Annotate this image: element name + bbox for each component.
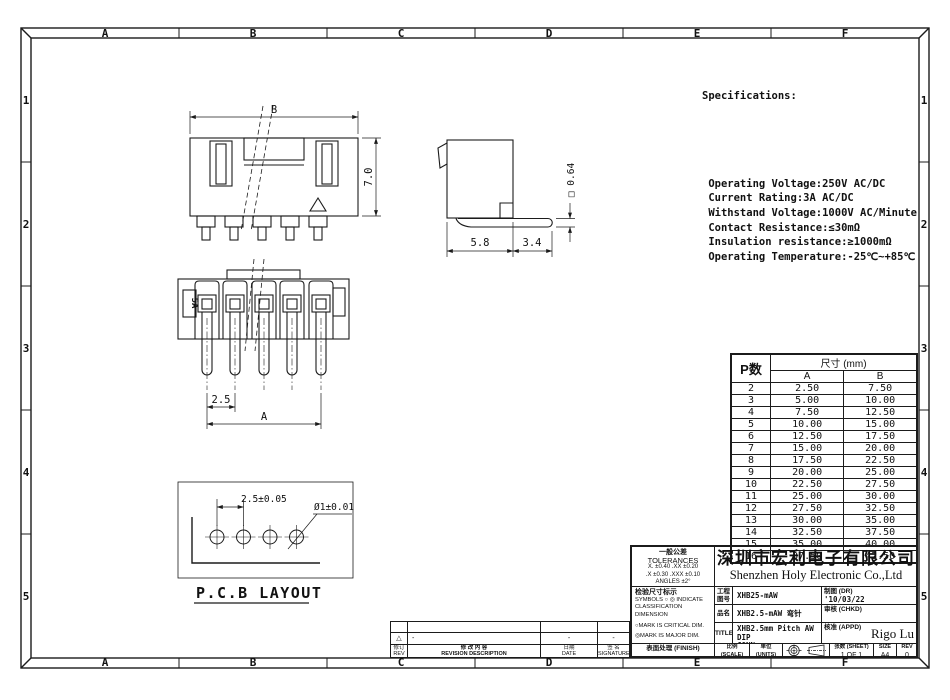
size-table-col-b: B (844, 371, 917, 383)
revision-desc-header: 修 改 内 容 REVISION DESCRIPTION (408, 645, 541, 657)
symbols-line: ○MARK IS CRITICAL DIM. (635, 623, 714, 631)
cell-dim-a: 27.50 (771, 503, 844, 515)
name-cell: XHB2.5-mAW 弯针 (733, 605, 822, 623)
dim-pcb-hole: Ø1±0.01 (314, 502, 354, 513)
current-marking: 5A (189, 298, 199, 309)
grid-row-label: 1 (921, 94, 928, 107)
front-view-dimensions (190, 111, 381, 216)
dim-side-pin-size: □ 0.64 (566, 163, 577, 198)
cell-pin-count: 8 (731, 455, 771, 467)
revision-desc-value: - (408, 633, 541, 645)
finish-cell: 表面处理 (FINISH) (632, 644, 715, 657)
drawn-cell: 制图 (DR) '10/03/22 (822, 587, 917, 605)
tolerances-line: .X ±0.30 .XXX ±0.10 (632, 572, 714, 580)
cell-dim-b: 32.50 (844, 503, 917, 515)
cell-pin-count: 7 (731, 443, 771, 455)
cell-pin-count: 13 (731, 515, 771, 527)
cell-pin-count: 3 (731, 395, 771, 407)
units-label: 单位 (UNITS) (750, 644, 782, 657)
specifications-block: Specifications: Operating Voltage:250V A… (702, 60, 917, 279)
cell-dim-b: 17.50 (844, 431, 917, 443)
cell-dim-a: 22.50 (771, 479, 844, 491)
table-row: 10 22.50 27.50 (731, 479, 917, 491)
grid-row-label: 5 (921, 590, 928, 603)
cell-dim-a: 10.00 (771, 419, 844, 431)
cell-dim-b: 20.00 (844, 443, 917, 455)
revision-sig-value: - (598, 633, 629, 645)
table-row: 3 5.00 10.00 (731, 395, 917, 407)
symbols-title-cn: 检验尺寸标示 (635, 589, 714, 597)
spec-line: Operating Temperature:-25℃~+85℃ (702, 250, 917, 265)
size-table-header-size: 尺寸 (mm) (771, 354, 918, 371)
company-name-cn: 深圳市宏利电子有限公司 (715, 549, 917, 568)
table-row: 6 12.50 17.50 (731, 431, 917, 443)
title-block: 一般公差 TOLERANCES X. ±0.40 .XX ±0.20 .X ±0… (630, 545, 918, 658)
size-table-col-a: A (771, 371, 844, 383)
cell-pin-count: 9 (731, 467, 771, 479)
specifications-title: Specifications: (702, 89, 917, 104)
cell-pin-count: 14 (731, 527, 771, 539)
cell-dim-b: 27.50 (844, 479, 917, 491)
cell-dim-a: 32.50 (771, 527, 844, 539)
grid-row-label: 3 (921, 342, 928, 355)
cell-pin-count: 6 (731, 431, 771, 443)
cell-pin-count: 2 (731, 383, 771, 395)
size-cell: SIZE A4 (874, 644, 897, 657)
grid-row-label: 3 (23, 342, 30, 355)
table-row: 8 17.50 22.50 (731, 455, 917, 467)
cell-dim-a: 7.50 (771, 407, 844, 419)
dim-pin-span: A (261, 411, 268, 423)
revision-date-header: 日期 DATE (541, 645, 598, 657)
grid-col-label: A (102, 656, 109, 669)
cell-dim-b: 10.00 (844, 395, 917, 407)
finish-blank-line (656, 656, 690, 657)
cell-dim-b: 7.50 (844, 383, 917, 395)
tolerances-title-en: TOLERANCES (632, 557, 714, 565)
table-row: 13 30.00 35.00 (731, 515, 917, 527)
cell-dim-a: 2.50 (771, 383, 844, 395)
part-no-value: XHB25-mAW (737, 591, 778, 600)
dim-side-pin: 3.4 (523, 237, 542, 249)
cell-dim-b: 25.00 (844, 467, 917, 479)
cell-dim-b: 37.50 (844, 527, 917, 539)
approved-cell: 核准 (APPD) Rigo Lu (822, 623, 917, 644)
title-label: TITLE (715, 630, 733, 637)
symbols-line: SYMBOLS ○ ◎ INDICATE (635, 597, 714, 605)
title-value: XHB2.5mm Pitch AW DIP CONN (737, 624, 814, 644)
tolerances-line: ANGLES ±2° (632, 579, 714, 587)
front-view-drawing (190, 106, 358, 240)
cell-dim-b: 22.50 (844, 455, 917, 467)
spec-line: Withstand Voltage:1000V AC/Minute (702, 206, 917, 221)
revision-empty-cell (541, 622, 598, 633)
symbols-line: ◎MARK IS MAJOR DIM. (635, 633, 714, 641)
table-row: 4 7.50 12.50 (731, 407, 917, 419)
grid-row-label: 2 (921, 218, 928, 231)
dim-side-body: 5.8 (471, 237, 490, 249)
grid-col-label: E (694, 27, 701, 40)
polarity-triangle-mark (310, 198, 326, 211)
cell-pin-count: 5 (731, 419, 771, 431)
grid-col-label: B (250, 656, 257, 669)
grid-col-label: C (398, 27, 405, 40)
sheet-value: 1 OF 1 (830, 652, 873, 658)
size-table: P数 尺寸 (mm) A B 2 2.50 7.50 3 5.00 10.00 … (730, 353, 918, 564)
name-label: 品名 (717, 610, 730, 617)
side-view-dimensions (447, 203, 575, 257)
revision-rev-header: 修订 REV (391, 645, 408, 657)
finish-label: 表面处理 (FINISH) (632, 645, 714, 653)
part-no-cell: XHB25-mAW (733, 587, 822, 605)
scale-cell: 比例 (SCALE) 1:1 (715, 644, 750, 657)
cell-dim-b: 12.50 (844, 407, 917, 419)
revision-symbol: △ (391, 633, 408, 645)
revision-block: △ - - - 修订 REV 修 改 内 容 REVISION DESCRIPT… (390, 621, 630, 658)
cell-pin-count: 10 (731, 479, 771, 491)
dim-pin-pitch: 2.5 (212, 394, 231, 406)
rev-cell: REV 0 (897, 644, 917, 657)
cell-dim-a: 15.00 (771, 443, 844, 455)
size-value: A4 (874, 652, 896, 658)
revision-empty-cell (391, 622, 408, 633)
cell-dim-a: 20.00 (771, 467, 844, 479)
grid-row-label: 2 (23, 218, 30, 231)
cell-dim-a: 17.50 (771, 455, 844, 467)
cell-dim-b: 35.00 (844, 515, 917, 527)
grid-col-label: F (842, 27, 849, 40)
checked-label: 审核 (CHKD) (824, 606, 917, 614)
grid-col-label: B (250, 27, 257, 40)
grid-col-label: D (546, 27, 553, 40)
pin-view-drawing (178, 259, 349, 390)
company-name-en: Shenzhen Holy Electronic Co.,Ltd (715, 568, 917, 582)
drawn-date: '10/03/22 (824, 596, 917, 604)
revision-empty-cell (598, 622, 629, 633)
grid-col-label: A (102, 27, 109, 40)
cell-dim-b: 15.00 (844, 419, 917, 431)
sheet-label: 张数 (SHEET) (830, 644, 873, 652)
cell-pin-count: 11 (731, 491, 771, 503)
cell-dim-a: 5.00 (771, 395, 844, 407)
grid-row-label: 5 (23, 590, 30, 603)
revision-sig-header: 签 名 SIGNATURE (598, 645, 629, 657)
scale-label: 比例 (SCALE) (715, 644, 749, 657)
tolerances-line: X. ±0.40 .XX ±0.20 (632, 564, 714, 572)
dim-pcb-pitch: 2.5±0.05 (241, 494, 287, 505)
pcb-layout-title: P.C.B LAYOUT (196, 584, 322, 602)
table-row: 2 2.50 7.50 (731, 383, 917, 395)
symbols-cell: 检验尺寸标示 SYMBOLS ○ ◎ INDICATE CLASSIFICATI… (632, 587, 715, 644)
table-row: 5 10.00 15.00 (731, 419, 917, 431)
spec-line: Current Rating:3A AC/DC (702, 191, 917, 206)
size-label: SIZE (874, 644, 896, 652)
sheet-cell: 张数 (SHEET) 1 OF 1 (830, 644, 874, 657)
title-label-cell: TITLE (715, 623, 733, 644)
name-value: XHB2.5-mAW 弯针 (737, 609, 802, 618)
part-no-label: 工程 图号 (717, 588, 730, 603)
table-row: 7 15.00 20.00 (731, 443, 917, 455)
approved-label: 核准 (APPD) (824, 624, 861, 631)
cell-pin-count: 12 (731, 503, 771, 515)
grid-row-label: 4 (23, 466, 30, 479)
rev-value: 0 (897, 652, 917, 658)
title-cell: XHB2.5mm Pitch AW DIP CONN (733, 623, 822, 644)
spec-line: Operating Voltage:250V AC/DC (702, 177, 917, 192)
part-no-label-cell: 工程 图号 (715, 587, 733, 605)
grid-row-label: 4 (921, 466, 928, 479)
projection-cell (783, 644, 830, 657)
name-label-cell: 品名 (715, 605, 733, 623)
dim-front-width: B (271, 104, 277, 116)
tolerances-cell: 一般公差 TOLERANCES X. ±0.40 .XX ±0.20 .X ±0… (632, 547, 715, 587)
dim-front-height: 7.0 (363, 168, 375, 187)
table-row: 14 32.50 37.50 (731, 527, 917, 539)
units-cell: 单位 (UNITS) mm (750, 644, 783, 657)
cell-dim-b: 30.00 (844, 491, 917, 503)
revision-empty-cell (408, 622, 541, 633)
revision-date-value: - (541, 633, 598, 645)
spec-line: Contact Resistance:≤30mΩ (702, 221, 917, 236)
rev-label: REV (897, 644, 917, 652)
cell-dim-a: 30.00 (771, 515, 844, 527)
third-angle-projection-icon (784, 644, 829, 657)
spec-line: Insulation resistance:≥1000mΩ (702, 235, 917, 250)
cell-dim-a: 12.50 (771, 431, 844, 443)
table-row: 12 27.50 32.50 (731, 503, 917, 515)
cell-pin-count: 4 (731, 407, 771, 419)
table-row: 9 20.00 25.00 (731, 467, 917, 479)
grid-row-label: 1 (23, 94, 30, 107)
side-view-drawing (438, 140, 552, 227)
company-cell: 深圳市宏利电子有限公司 Shenzhen Holy Electronic Co.… (715, 547, 917, 587)
symbols-line: CLASSIFICATION DIMENSION (635, 604, 714, 619)
size-table-header-p: P数 (731, 354, 771, 383)
table-row: 11 25.00 30.00 (731, 491, 917, 503)
cell-dim-a: 25.00 (771, 491, 844, 503)
checked-cell: 审核 (CHKD) (822, 605, 917, 623)
